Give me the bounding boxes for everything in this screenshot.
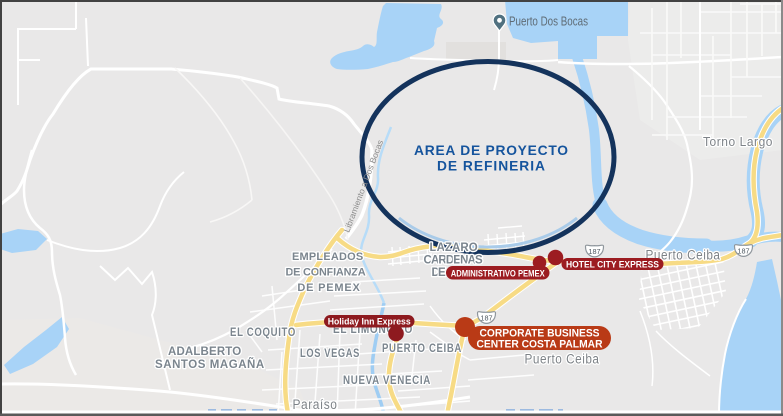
svg-text:PUERTO CEIBA: PUERTO CEIBA	[382, 341, 462, 355]
svg-text:AREA DE PROYECTO: AREA DE PROYECTO	[414, 143, 568, 158]
svg-text:LAZARO: LAZARO	[430, 242, 479, 254]
svg-text:187: 187	[480, 313, 492, 322]
svg-text:DE PEMEX: DE PEMEX	[297, 282, 360, 294]
svg-text:Puerto Dos Bocas: Puerto Dos Bocas	[509, 15, 588, 29]
svg-text:DE: DE	[432, 267, 447, 279]
svg-text:DE REFINERIA: DE REFINERIA	[437, 159, 545, 174]
svg-text:NUEVA VENECIA: NUEVA VENECIA	[343, 375, 431, 387]
svg-text:ADALBERTO: ADALBERTO	[168, 346, 242, 358]
svg-text:EMPLEADOS: EMPLEADOS	[292, 251, 364, 263]
svg-text:CENTER COSTA PALMAR: CENTER COSTA PALMAR	[477, 339, 603, 351]
svg-text:Puerto Ceiba: Puerto Ceiba	[525, 352, 600, 367]
svg-text:Torno Largo: Torno Largo	[703, 134, 773, 149]
svg-text:SANTOS MAGAÑA: SANTOS MAGAÑA	[155, 358, 265, 371]
svg-text:Holiday Inn Express: Holiday Inn Express	[328, 317, 411, 328]
svg-text:CARDENAS: CARDENAS	[424, 255, 484, 267]
svg-text:LOS VEGAS: LOS VEGAS	[300, 348, 360, 360]
svg-text:HOTEL CITY EXPRESS: HOTEL CITY EXPRESS	[566, 259, 659, 269]
svg-text:ADMINISTRATIVO PEMEX: ADMINISTRATIVO PEMEX	[451, 268, 545, 278]
svg-text:EL COQUITO: EL COQUITO	[230, 327, 296, 339]
svg-text:187: 187	[737, 246, 749, 255]
svg-text:187: 187	[588, 247, 600, 256]
svg-text:Paraíso: Paraíso	[293, 397, 338, 412]
svg-text:DE CONFIANZA: DE CONFIANZA	[286, 267, 367, 279]
